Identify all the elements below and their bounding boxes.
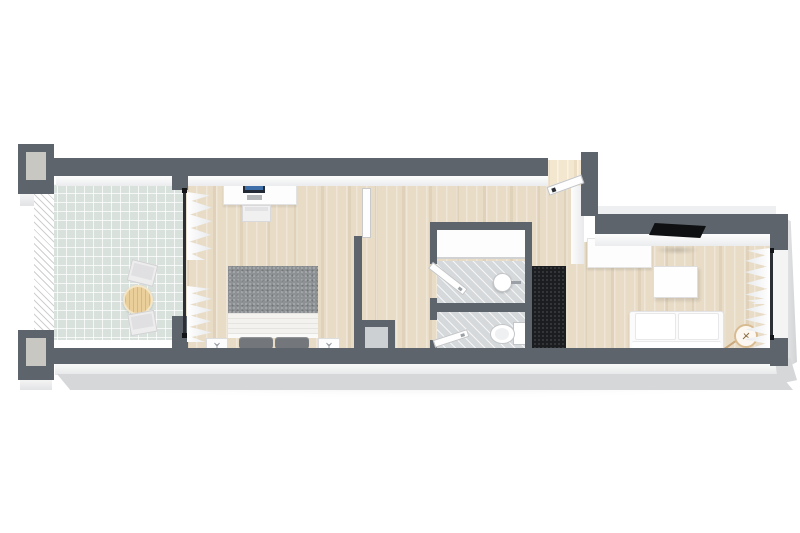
- pillar-bottom-left-face: [20, 380, 52, 390]
- desk-chair: [242, 205, 271, 222]
- built-in-closet: [437, 226, 525, 259]
- exterior-wall-top-face: [56, 176, 548, 186]
- niche-wall-left: [358, 320, 365, 350]
- window-glass: [770, 250, 773, 338]
- bed-duvet: [228, 266, 318, 313]
- window-sill: [772, 250, 788, 338]
- toilet: [490, 324, 515, 344]
- bedroom-door: [362, 188, 371, 238]
- wall-stub-top: [172, 170, 188, 190]
- tv-shadow: [655, 246, 699, 254]
- glass-wall: [183, 190, 186, 336]
- bathroom-wall-left-mid: [430, 298, 437, 320]
- bathroom-wall-top: [430, 222, 532, 230]
- exterior-wall-top-living-outer: [598, 206, 776, 214]
- exterior-wall-top: [54, 158, 548, 176]
- coffee-table: [653, 266, 698, 298]
- patio-chair: [127, 310, 157, 336]
- round-sink: [493, 273, 512, 292]
- sofa-cushion: [678, 313, 719, 340]
- niche-wall-right: [388, 320, 395, 350]
- bed-sheet: [228, 313, 318, 334]
- sofa-cushion: [635, 313, 676, 340]
- dark-wardrobe: [529, 266, 566, 348]
- bathroom-divider-wall: [437, 303, 525, 312]
- bathroom-wall-left: [430, 222, 437, 264]
- niche-floor: [365, 327, 388, 348]
- keyboard: [247, 195, 262, 200]
- exterior-wall-bottom: [54, 348, 778, 364]
- floor-slab-edge: [57, 374, 793, 390]
- floorplan-canvas: [0, 0, 800, 533]
- balcony-floor: [48, 184, 188, 340]
- bathroom-wall-right: [525, 222, 532, 348]
- wall-step-connector: [581, 152, 598, 216]
- balcony-railing: [34, 190, 54, 336]
- pillar-bottom-left-cap: [26, 338, 46, 366]
- pillar-top-left-cap: [26, 152, 46, 180]
